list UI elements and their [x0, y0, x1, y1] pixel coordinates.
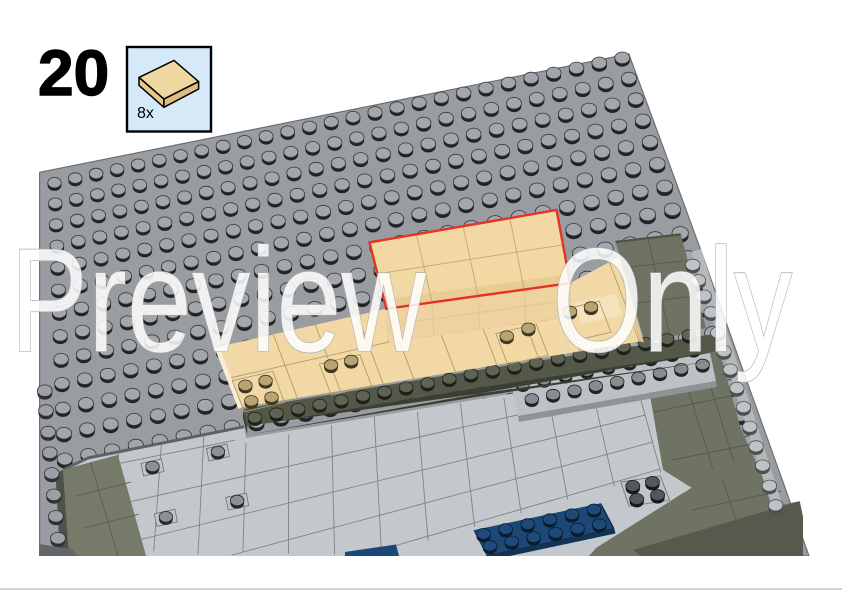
svg-text:8x: 8x	[137, 105, 154, 122]
svg-text:Only: Only	[552, 218, 793, 383]
svg-text:Preview: Preview	[10, 218, 426, 383]
svg-text:20: 20	[38, 37, 109, 109]
